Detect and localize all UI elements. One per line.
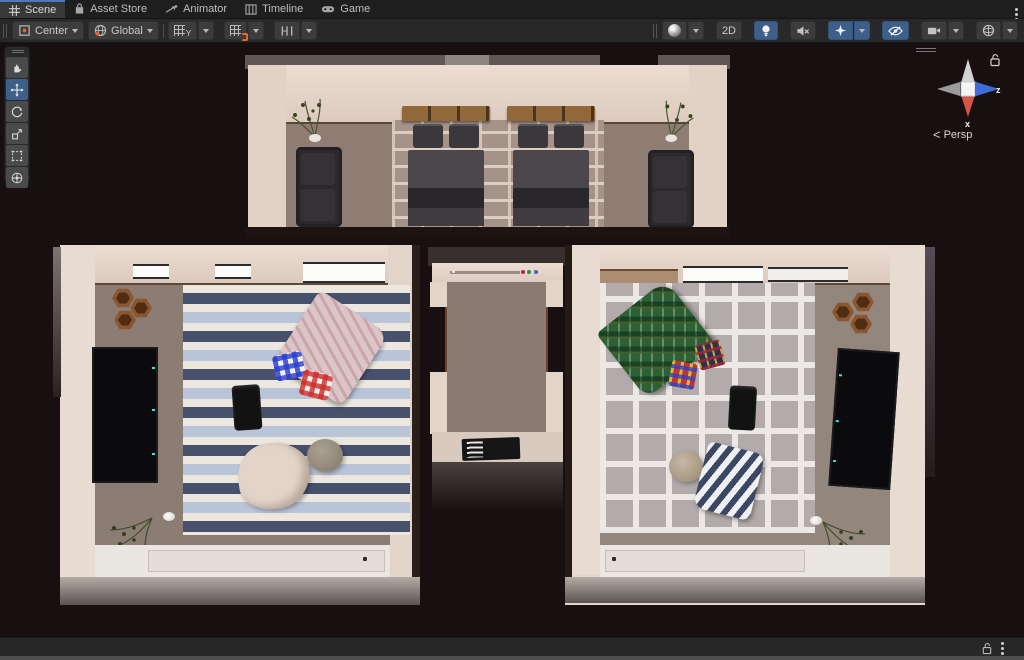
scene-lighting-button[interactable] [754,21,778,40]
eye-slash-icon [888,25,903,37]
sofa[interactable] [296,147,342,227]
trinket-white [452,270,455,273]
shelf-cell [114,310,136,330]
toolbar-drag-handle[interactable] [3,24,7,38]
tool-handle-rotation-button[interactable]: Global [88,21,159,40]
hallway-east-wall-lower [546,372,563,434]
camera-settings-dropdown[interactable] [948,21,964,40]
effects-toggle-button[interactable] [828,21,853,40]
west-wall-face [248,65,286,227]
trinket-red [521,270,525,274]
shaded-sphere-icon [668,24,681,37]
bed-pillow [518,124,548,148]
hand-icon [10,61,24,75]
chevron-down-icon [203,29,209,33]
projection-label: Persp [944,129,973,141]
gizmo-axis-left-cone[interactable] [937,82,960,96]
grid-snapping-button[interactable] [224,21,247,40]
orientation-label: Global [111,25,143,37]
unity-editor-window: Scene Asset Store Animator Timeline Game… [0,0,1024,660]
tv-led-glint [833,460,836,462]
wall-lamp[interactable] [163,512,175,521]
scene-orientation-gizmo: z x [923,51,1013,129]
east-door-jamb [546,307,548,372]
tv-led-glint [152,453,155,455]
tv-led-glint [152,409,155,411]
pivot-label: Center [35,25,68,37]
tab-scene[interactable]: Scene [0,0,65,18]
overlay-drag-handle[interactable] [916,48,936,49]
grid-icon [174,25,185,36]
chevron-down-icon [953,29,959,33]
scene-viewport[interactable]: z x < Persp [0,43,1024,637]
globe-icon [94,24,107,37]
transform-tool[interactable] [6,167,28,188]
statusbar-menu-button[interactable] [1001,642,1004,645]
bed-duvet-foot [513,208,589,226]
tab-asset-store[interactable]: Asset Store [65,0,156,18]
bed-headboard [507,106,595,121]
overlay-drag-handle[interactable] [12,50,24,51]
black-bag[interactable] [231,384,262,431]
plant-pot [309,134,321,142]
potted-plant[interactable] [287,91,333,143]
camera-icon [927,25,941,36]
move-tool[interactable] [6,79,28,100]
grid-visibility-dropdown[interactable] [198,21,214,40]
tv-led-glint [839,374,842,376]
shopping-bag-icon [74,3,85,15]
camera-settings-button[interactable] [921,21,947,40]
trinket-blue [534,270,538,274]
scene-visibility-button[interactable] [882,21,909,40]
gizmos-dropdown[interactable] [1002,21,1018,40]
room-living-west[interactable] [60,245,420,605]
gizmo-axis-up-cone[interactable] [961,59,975,83]
gray-pouf[interactable] [307,439,343,472]
rect-tool[interactable] [6,145,28,166]
trinket-green [527,270,531,274]
lightbulb-icon [760,24,772,37]
projection-chevron-icon: < [933,128,941,141]
wall-lamp[interactable] [810,516,822,525]
bed-duvet-band [408,188,484,208]
rect-icon [10,149,24,163]
gizmo-center-cube[interactable] [961,82,975,96]
hallway-east-wall-upper [546,280,563,307]
shelf-cell [112,288,134,308]
black-bag[interactable] [728,385,757,430]
tab-label: Scene [25,4,56,16]
room-hallway[interactable] [425,247,570,527]
bed-pillow [413,124,443,148]
east-exterior-edge [925,247,935,477]
gizmos-sphere-icon [982,24,995,37]
tab-label: Game [340,3,370,15]
multicolor-plaid-cube[interactable] [668,360,698,390]
window-handle [363,557,367,561]
double-bed[interactable] [407,106,485,226]
sofa-cushion [301,189,335,221]
rotate-icon [10,105,24,119]
west-wall-face [60,245,95,605]
ledge-channel [148,550,385,572]
room-bedroom-north[interactable] [245,55,730,238]
ceiling-light-panel[interactable] [215,264,251,279]
audio-muted-icon [796,25,810,37]
west-door-jamb [445,307,447,372]
bed-duvet-band [513,188,589,208]
ceiling-light-panel[interactable] [133,264,169,279]
rotate-tool[interactable] [6,101,28,122]
view-hand-tool[interactable] [6,57,28,78]
kebab-menu-icon [1001,642,1004,645]
draw-mode-dropdown[interactable] [688,21,704,40]
status-bar [0,637,1024,660]
snap-increment-button[interactable] [274,21,300,40]
scale-tool[interactable] [6,123,28,144]
transform-icon [10,171,24,185]
ledge-channel [605,550,805,572]
sofa-cushion [653,156,687,188]
shelf-cell [850,314,872,334]
move-icon [10,83,24,97]
gizmo-z-label: z [996,85,1001,95]
bed-duvet-foot [408,208,484,226]
window-handle [612,557,616,561]
sofa-cushion [653,191,687,223]
tab-label: Asset Store [90,3,147,15]
chevron-down-icon [253,29,259,33]
audio-toggle-button[interactable] [790,21,816,40]
tab-bar: Scene Asset Store Animator Timeline Game [0,0,1024,19]
bed-pillow [554,124,584,148]
toolbar-separator [163,24,164,38]
south-wall-front [565,577,925,603]
tab-game[interactable]: Game [312,0,379,18]
west-wall-face [572,245,600,575]
tab-animator[interactable]: Animator [156,0,236,18]
chevron-down-icon [859,29,865,33]
hex-wall-shelf[interactable] [112,288,160,336]
hallway-south-exterior [432,462,563,512]
west-exterior-edge [53,247,61,397]
2d-mode-button[interactable]: 2D [716,21,742,40]
chevron-down-icon [147,29,153,33]
gizmo-axis-x-cone[interactable] [961,95,975,117]
snap-increment-dropdown[interactable] [301,21,317,40]
double-bed[interactable] [512,106,590,226]
toolbar-drag-handle[interactable] [653,24,657,38]
chevron-down-icon [306,29,312,33]
grid-visibility-button[interactable]: Y [168,21,197,40]
kebab-menu-icon [1015,8,1018,11]
east-wall-core [412,245,420,585]
grid-snapping-dropdown[interactable] [248,21,264,40]
hex-wall-shelf[interactable] [830,292,878,340]
east-wall-face [689,65,727,227]
snap-increment-icon [280,25,294,37]
sofa[interactable] [648,150,694,228]
tv-led-glint [836,420,839,422]
tab-label: Timeline [262,3,303,15]
tv-led-glint [152,367,155,369]
tools-overlay [4,46,30,185]
scene-toolbar: Center Global Y 2D [0,19,1024,43]
draw-mode-button[interactable] [662,21,687,40]
scale-icon [10,127,24,141]
projection-toggle[interactable]: < Persp [933,128,972,141]
snap-accent-icon [241,33,248,41]
chevron-down-icon [1007,29,1013,33]
chevron-down-icon [72,29,78,33]
grid-icon [230,25,241,36]
shelf-cell [852,292,874,312]
tool-handle-pivot-button[interactable]: Center [12,21,84,40]
tab-timeline[interactable]: Timeline [236,0,312,18]
black-doormat[interactable] [462,437,521,461]
gamepad-icon [321,4,335,14]
scene-grid-icon [9,5,20,16]
hallway-floor [447,282,546,436]
grid-axis-label: Y [186,29,191,38]
west-wall-core [565,245,572,585]
hallway-west-wall-lower [430,372,447,434]
orientation-gizmo-overlay: z x < Persp [905,43,1020,148]
tab-label: Animator [183,3,227,15]
doormat-stripes [467,441,484,458]
ceiling-light-panel[interactable] [303,262,385,283]
2d-label: 2D [722,25,736,37]
tab-bar-menu-button[interactable] [1015,8,1018,11]
bed-headboard [402,106,490,121]
effects-dropdown[interactable] [854,21,870,40]
beige-pouf[interactable] [669,451,703,482]
south-wall-cut [245,227,730,239]
unlock-icon[interactable] [981,642,993,655]
hallway-west-wall-upper [430,282,447,307]
animator-icon [165,4,178,15]
sofa-cushion [301,153,335,185]
ceiling-light-panel[interactable] [683,266,763,283]
wall-tv[interactable] [92,347,158,483]
shelf-cell [832,302,854,322]
ceiling-light-panel[interactable] [768,267,848,282]
film-icon [245,4,257,15]
shelf-cell [130,298,152,318]
plant-pot [665,134,677,142]
pivot-icon [18,24,31,37]
bed-pillow [449,124,479,148]
potted-plant[interactable] [653,93,699,143]
gizmos-button[interactable] [976,21,1001,40]
chevron-down-icon [693,29,699,33]
south-wall-front [60,577,420,605]
effects-sparkle-icon [834,24,847,37]
shelf-trinkets [450,271,520,274]
wall-tv[interactable] [828,348,899,490]
room-living-east[interactable] [565,245,925,605]
